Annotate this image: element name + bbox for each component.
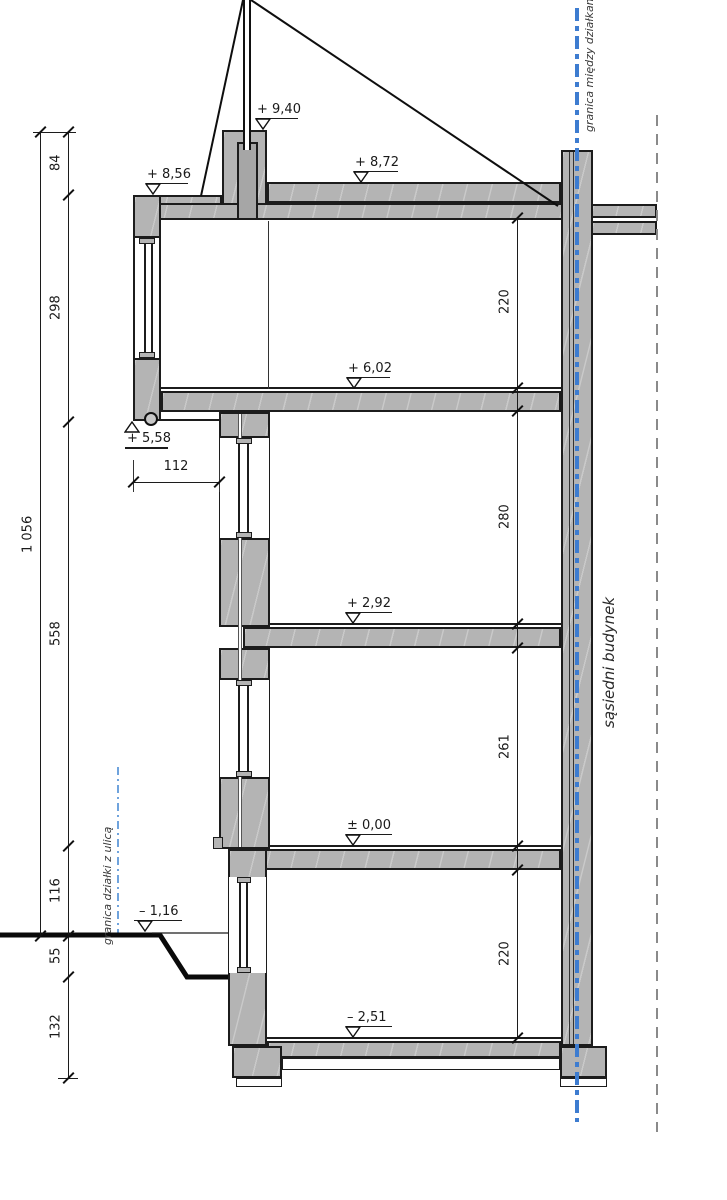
right-wall-layer-line-2: [573, 152, 574, 1044]
elevation-triangle-940: [255, 118, 271, 130]
neighbor-roof-band-upper: [591, 204, 657, 218]
topfloor-wall-spandrel: [133, 195, 161, 238]
window-floor2-mullion-1: [238, 680, 240, 777]
elevation-underline-558: [125, 447, 168, 449]
window-floor3: [219, 438, 270, 538]
footing-left: [232, 1046, 282, 1078]
dim-ext-overhang-left: [133, 460, 134, 492]
boundary-between-plots-label: granica między działkami: [583, 14, 596, 132]
window-basement-mullion-1: [239, 877, 241, 973]
dim-label-298: 298: [48, 278, 64, 338]
antenna-mast: [243, 0, 251, 150]
mast-base-shaft: [237, 142, 258, 220]
dim-label-total: 1 056: [20, 504, 36, 564]
elevation-triangle-m251: [345, 1026, 361, 1038]
gutter-circle: [144, 412, 158, 426]
elevation-triangle-m116: [137, 920, 153, 932]
elevation-label-602: + 6,02: [348, 361, 392, 376]
topfloor-wall-lower-block: [133, 358, 161, 421]
section-drawing: + 9,40 + 8,72 + 8,56 + 6,02 + 5,58 + 2,9…: [0, 0, 727, 1200]
footing-left-lean: [236, 1078, 282, 1087]
elevation-label-872: + 8,72: [355, 155, 399, 170]
window-floor2-transom-bottom: [236, 771, 252, 777]
slab-000: [243, 849, 561, 870]
dim-ext-overhang-right: [219, 460, 220, 492]
dim-label-55: 55: [48, 926, 64, 986]
slab-292: [243, 627, 561, 648]
wall3: [219, 538, 270, 627]
plot-boundary-line-right: [575, 8, 579, 1122]
elevation-triangle-856: [145, 183, 161, 195]
footing-right-lean: [560, 1078, 607, 1087]
elevation-label-292: + 2,92: [347, 596, 391, 611]
elevation-label-000: ± 0,00: [347, 818, 391, 833]
elevation-label-558: + 5,58: [127, 431, 171, 446]
elevation-label-m116: – 1,16: [139, 904, 179, 919]
elevation-label-940: + 9,40: [257, 102, 301, 117]
dim-label-220-top: 220: [497, 272, 513, 332]
dim-label-116: 116: [48, 861, 64, 921]
slab-basement: [267, 1041, 561, 1058]
wall2-plinth-step: [213, 837, 223, 849]
dim-label-220-basement: 220: [497, 924, 513, 984]
lean-concrete-floor: [282, 1058, 560, 1070]
slab-602: [161, 391, 561, 412]
roof-finish-right: [267, 182, 561, 203]
window-basement-transom-bottom: [237, 967, 251, 973]
interior-projection-line: [268, 221, 269, 389]
right-wall-layer-line-1: [569, 152, 570, 1044]
dim-line-interior: [517, 218, 518, 1038]
dim-label-280: 280: [497, 487, 513, 547]
elevation-triangle-000: [345, 834, 361, 846]
window-floor3-transom-top: [236, 438, 252, 444]
dim-label-558: 558: [48, 604, 64, 664]
window-floor3-transom-bottom: [236, 532, 252, 538]
window-floor2: [219, 680, 270, 777]
wall2-spandrel: [219, 648, 270, 680]
elevation-triangle-872: [353, 171, 369, 183]
elevation-label-m251: – 2,51: [347, 1010, 387, 1025]
window-floor2-mullion-2: [247, 680, 249, 777]
topfloor-window-mullion-2: [151, 238, 153, 358]
dim-label-261: 261: [497, 717, 513, 777]
window-floor2-transom-top: [236, 680, 252, 686]
elevation-label-856: + 8,56: [147, 167, 191, 182]
neighbor-building-dashed-line: [656, 115, 658, 1132]
dim-label-132: 132: [48, 997, 64, 1057]
dim-line-left-total: [40, 132, 41, 936]
footing-right: [560, 1046, 607, 1078]
topfloor-window: [133, 238, 161, 358]
dim-label-84: 84: [48, 133, 64, 193]
elevation-triangle-292: [345, 612, 361, 624]
wall2: [219, 777, 270, 849]
roof-slab: [140, 203, 593, 220]
window-floor3-mullion-2: [247, 438, 249, 538]
elevation-triangle-602: [346, 377, 362, 389]
window-basement-transom-top: [237, 877, 251, 883]
topfloor-window-mullion-1: [144, 238, 146, 358]
neighbor-roof-band-lower: [591, 221, 657, 235]
boundary-street-label: granica działki z ulicą: [101, 833, 114, 945]
dim-line-overhang: [133, 482, 219, 483]
wall3-spandrel: [219, 412, 270, 438]
plot-boundary-line-street: [117, 767, 119, 936]
neighbor-building-label: sąsiedni budynek: [600, 608, 618, 728]
ground-line: [0, 935, 228, 977]
window-floor3-mullion-1: [238, 438, 240, 538]
topfloor-window-transom-top: [139, 238, 155, 244]
window-basement-mullion-2: [246, 877, 248, 973]
dim-label-overhang: 112: [146, 459, 206, 474]
